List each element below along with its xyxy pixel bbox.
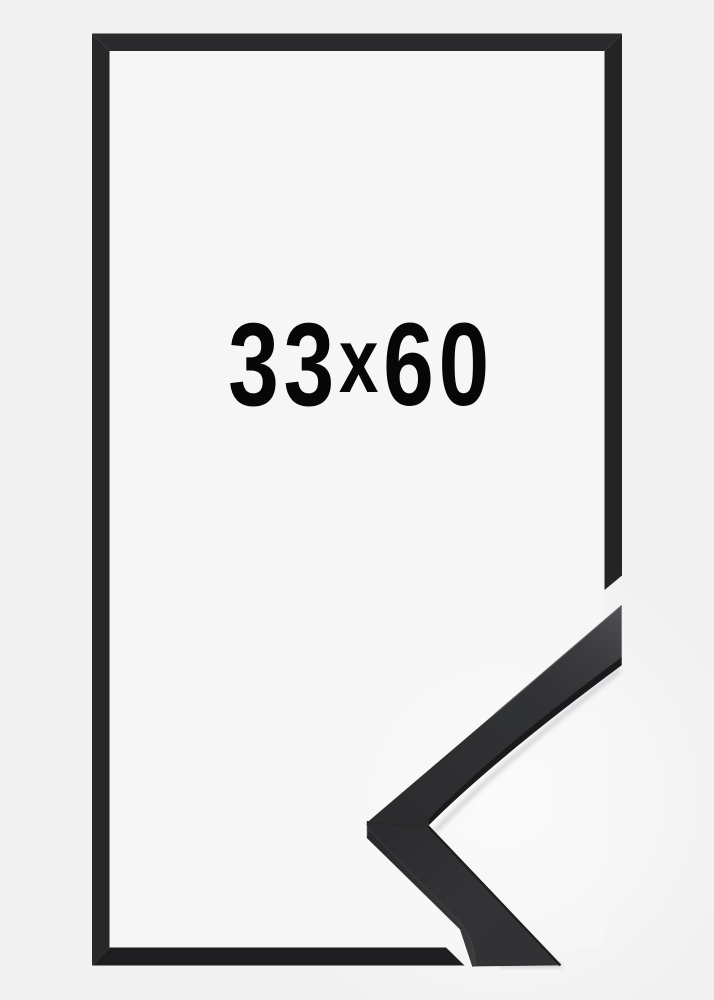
svg-text:33x60: 33x60	[228, 300, 494, 431]
